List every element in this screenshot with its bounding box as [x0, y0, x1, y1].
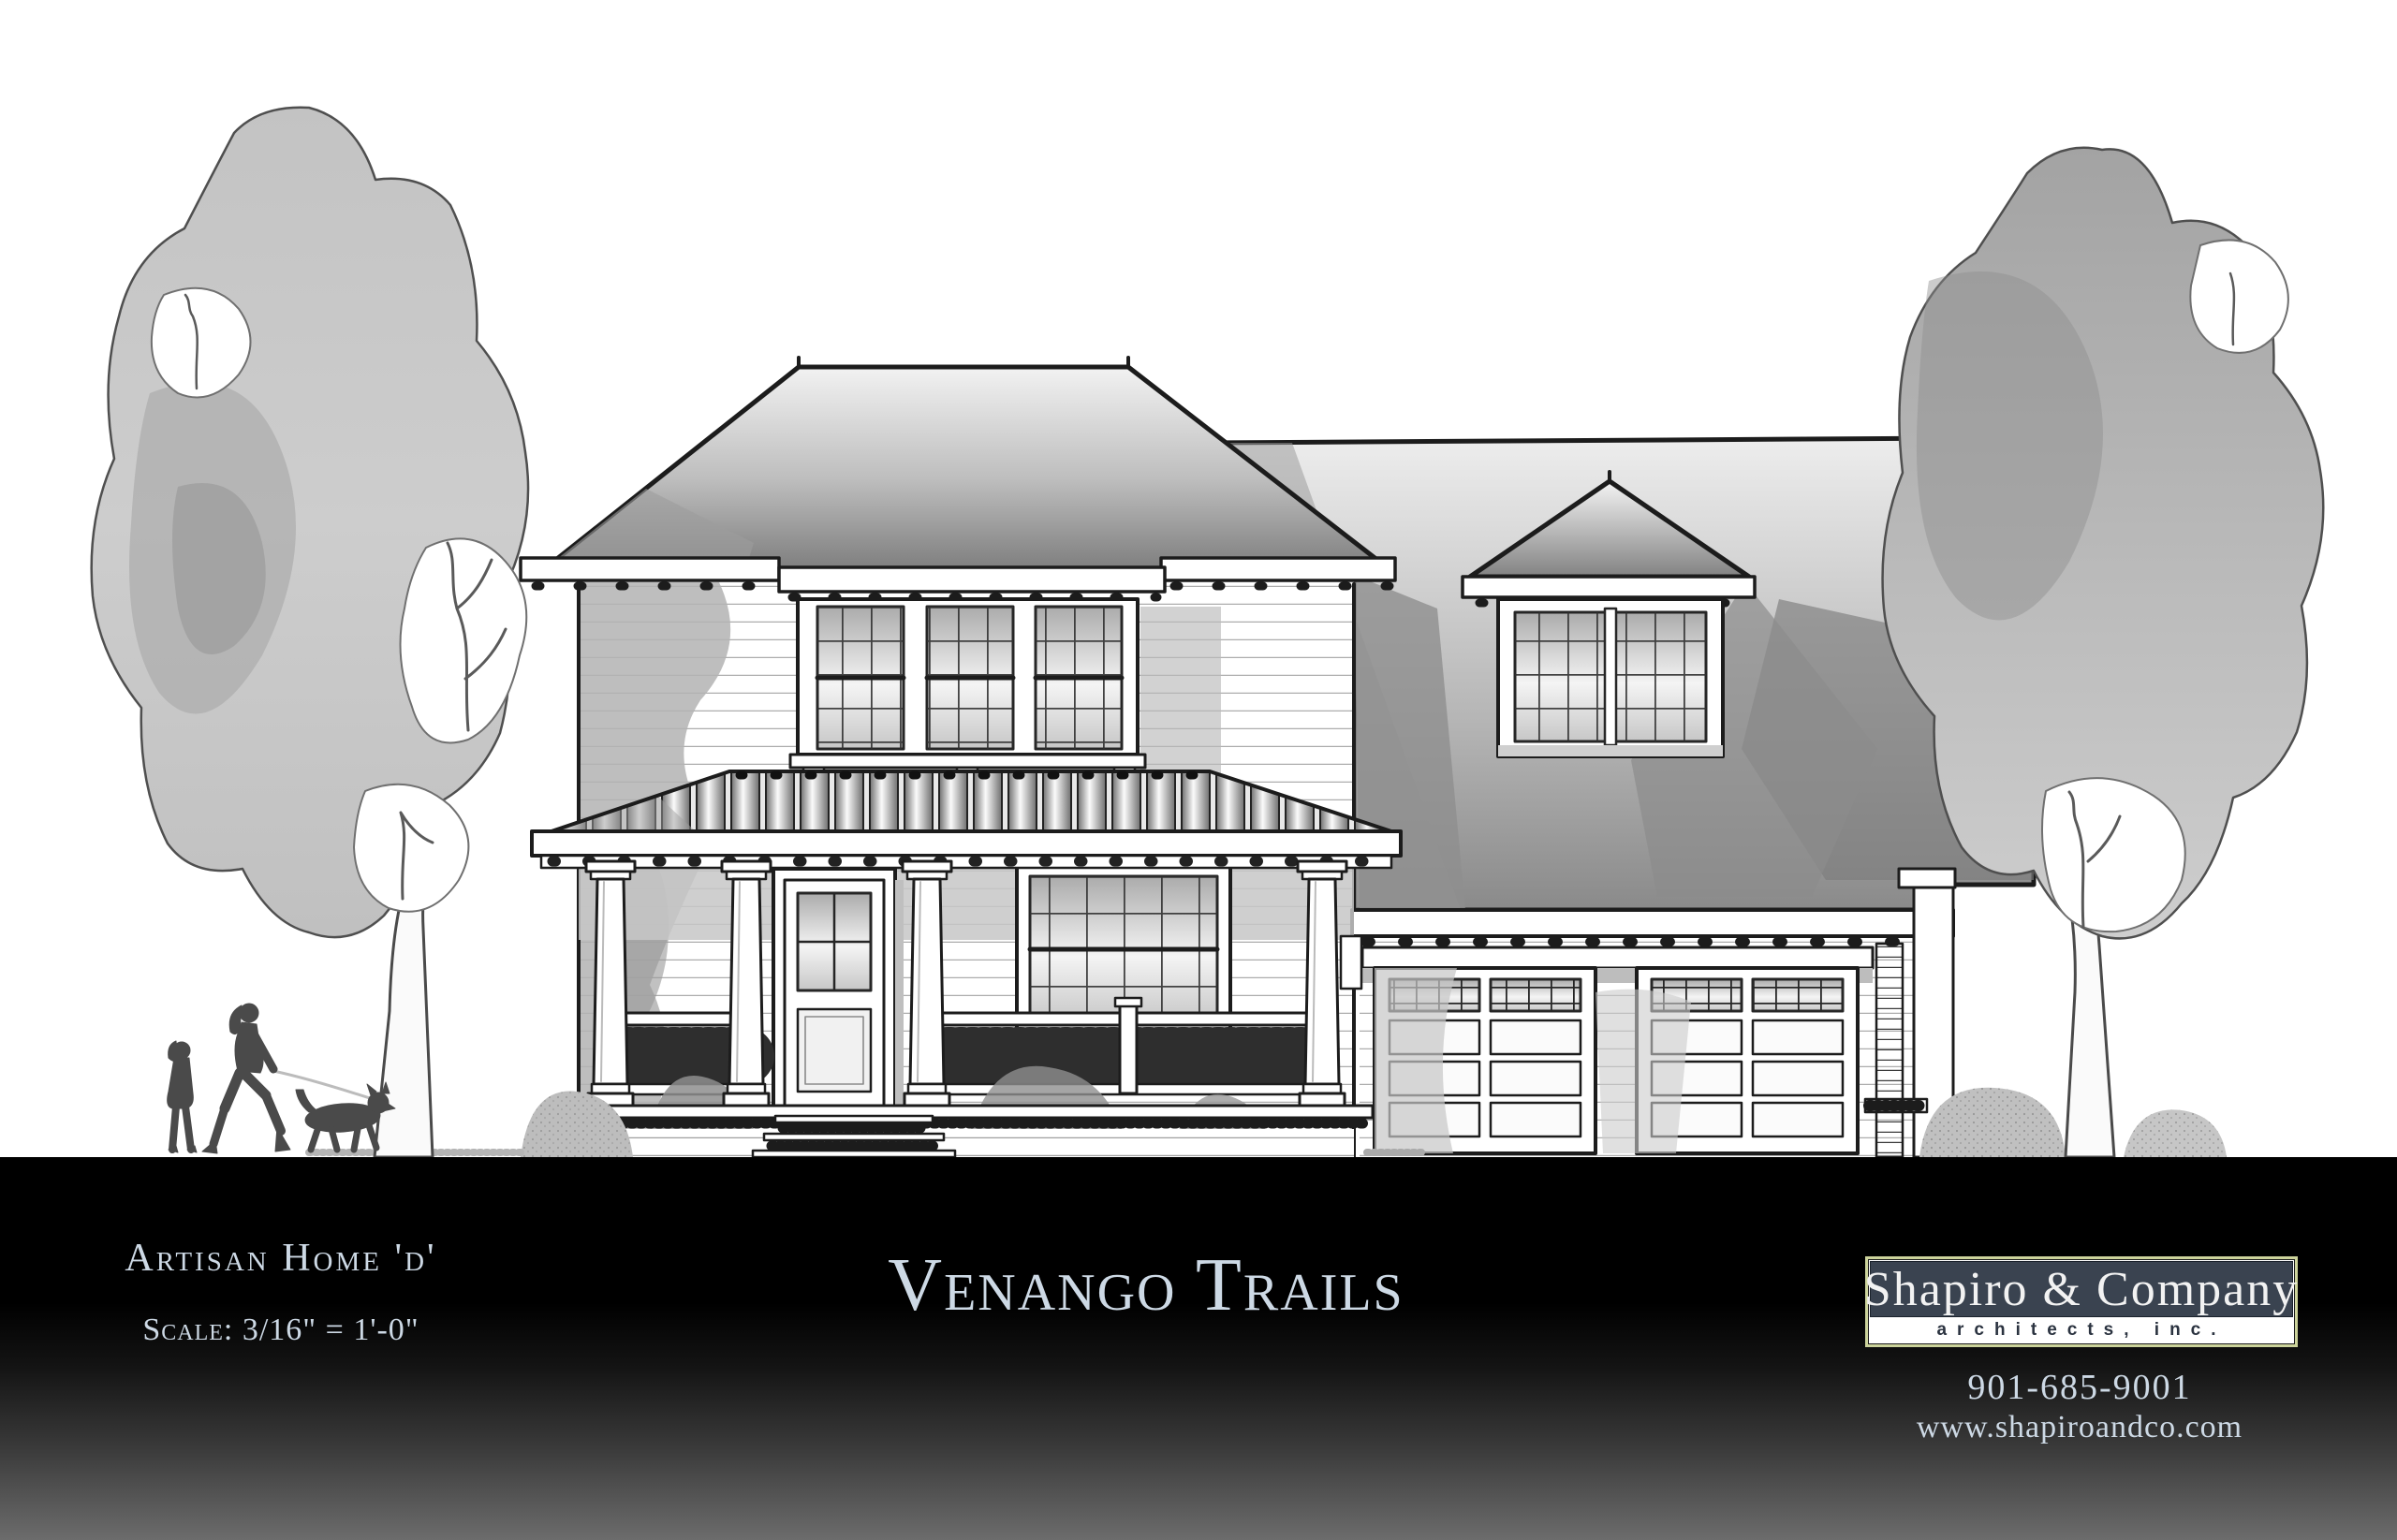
project-title: Venango Trails: [809, 1243, 1483, 1328]
firm-website: www.shapiroandco.com: [1865, 1410, 2294, 1445]
presentation-sheet: Artisan Home 'd' Scale: 3/16" = 1'-0" Ve…: [0, 0, 2397, 1540]
plan-scale: Scale: 3/16" = 1'-0": [37, 1313, 524, 1348]
corner-bracket: [1341, 936, 1361, 989]
front-door: [773, 869, 904, 1108]
garage-fascia: [1352, 910, 1953, 936]
firm-phone: 901-685-9001: [1865, 1367, 2294, 1408]
porch-steps: [753, 1116, 955, 1157]
dormer-window: [1498, 599, 1723, 756]
corner-trim: [1876, 944, 1903, 1157]
firm-name: Shapiro & Company: [1870, 1261, 2293, 1317]
eave-return: [1899, 869, 1955, 887]
porch-floor: [551, 1106, 1373, 1157]
title-block: Artisan Home 'd' Scale: 3/16" = 1'-0" Ve…: [0, 1157, 2397, 1540]
porch-railing: [618, 998, 1313, 1094]
plan-name: Artisan Home 'd': [37, 1236, 524, 1281]
firm-subtitle: architects, inc.: [1870, 1317, 2293, 1342]
upper-triple-window: [790, 599, 1145, 779]
garage: [1352, 869, 1955, 1157]
firm-logo: Shapiro & Company architects, inc.: [1865, 1256, 2298, 1347]
